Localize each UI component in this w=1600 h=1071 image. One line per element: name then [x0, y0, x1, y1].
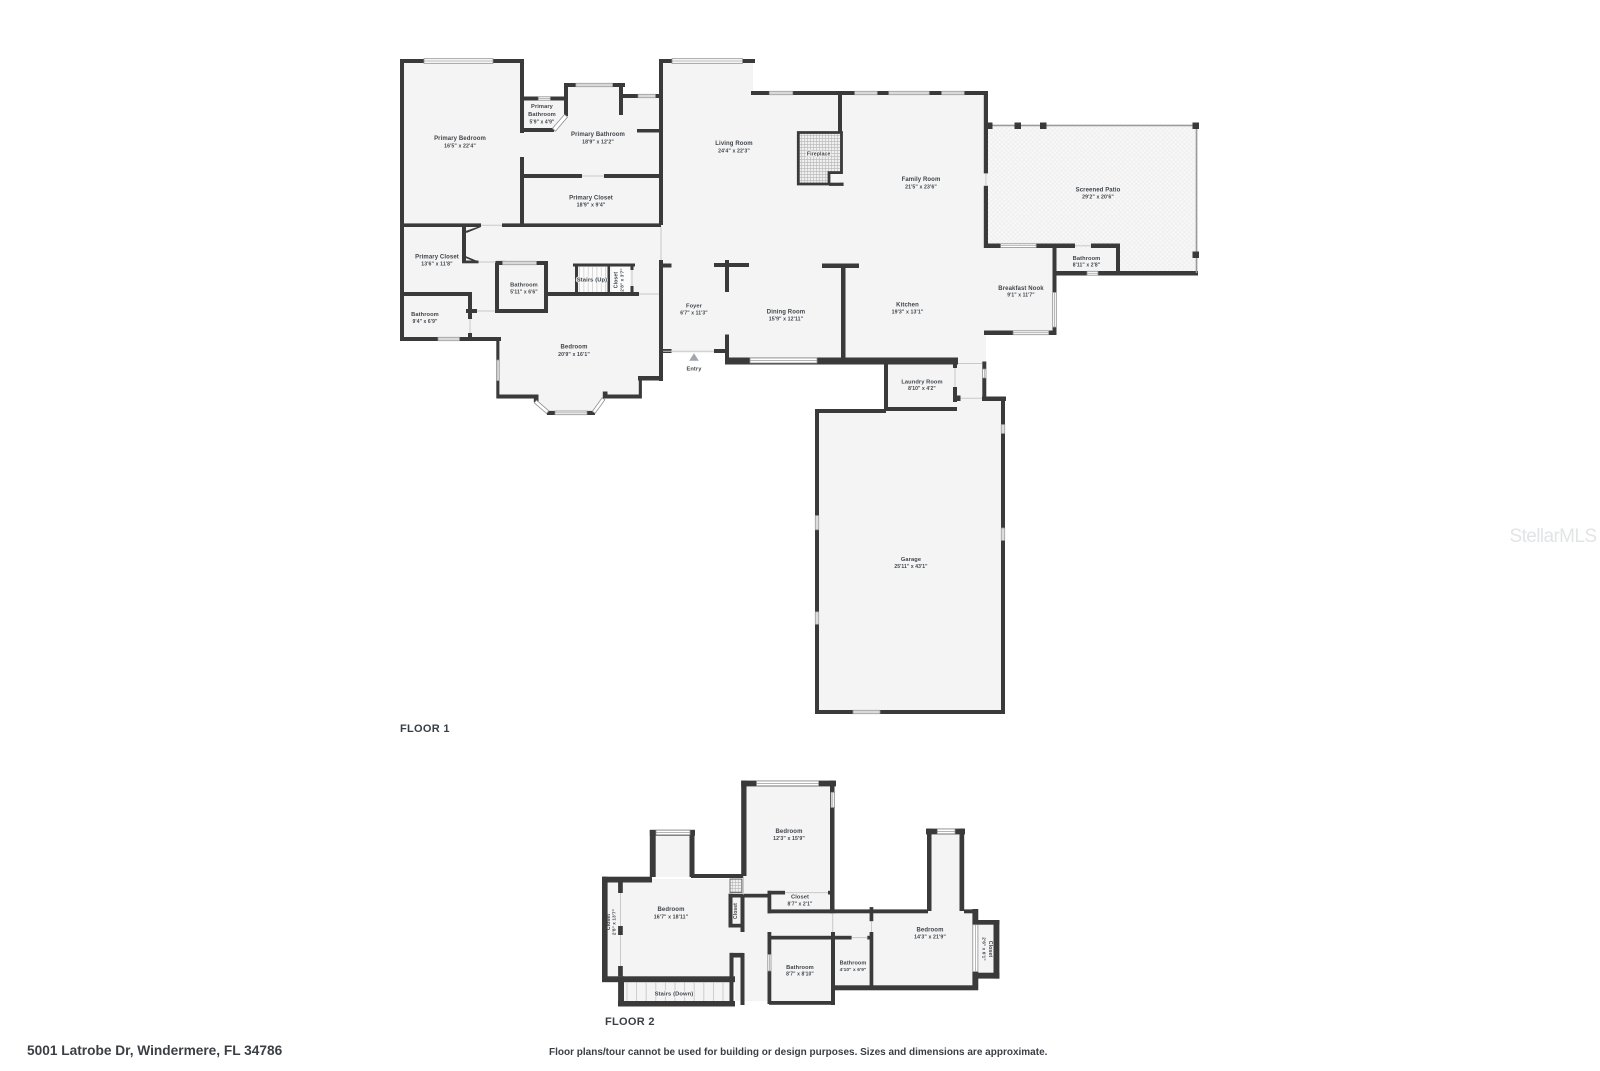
svg-text:Stairs (Up): Stairs (Up)	[577, 278, 607, 284]
svg-text:5'11" x 6'6": 5'11" x 6'6"	[510, 290, 538, 296]
svg-text:Closet: Closet	[791, 895, 809, 901]
svg-text:Breakfast Nook: Breakfast Nook	[998, 286, 1044, 292]
svg-text:4'10" x 6'9": 4'10" x 6'9"	[840, 967, 867, 973]
svg-text:Bedroom: Bedroom	[916, 928, 943, 934]
svg-text:24'4" x 22'3": 24'4" x 22'3"	[718, 149, 750, 155]
svg-text:16'5" x 22'4": 16'5" x 22'4"	[444, 144, 476, 150]
svg-text:12'3" x 15'9": 12'3" x 15'9"	[773, 836, 805, 842]
svg-text:9'4" x 6'9": 9'4" x 6'9"	[413, 319, 438, 325]
svg-text:9'1" x 11'7": 9'1" x 11'7"	[1007, 293, 1035, 299]
svg-text:8'11" x 2'8": 8'11" x 2'8"	[1073, 263, 1101, 269]
svg-text:5001 Latrobe Dr, Windermere, F: 5001 Latrobe Dr, Windermere, FL 34786	[27, 1043, 283, 1058]
svg-text:25'11" x 43'1": 25'11" x 43'1"	[894, 564, 928, 570]
svg-text:Bathroom: Bathroom	[786, 965, 814, 971]
svg-text:Bathroom: Bathroom	[528, 112, 556, 118]
svg-text:16'7" x 18'11": 16'7" x 18'11"	[654, 915, 689, 921]
svg-text:Primary Closet: Primary Closet	[415, 255, 459, 261]
svg-text:13'6" x 11'8": 13'6" x 11'8"	[421, 262, 453, 268]
svg-text:Primary Bedroom: Primary Bedroom	[434, 136, 486, 142]
svg-text:Primary Closet: Primary Closet	[569, 196, 613, 202]
svg-text:14'3" x 21'9": 14'3" x 21'9"	[914, 935, 946, 941]
svg-text:Bedroom: Bedroom	[560, 345, 587, 351]
svg-text:Bedroom: Bedroom	[775, 829, 802, 835]
svg-text:Entry: Entry	[686, 367, 702, 373]
svg-text:18'9" x 9'4": 18'9" x 9'4"	[577, 203, 606, 209]
svg-text:8'7" x 2'1": 8'7" x 2'1"	[788, 902, 813, 908]
svg-text:8'10" x 4'2": 8'10" x 4'2"	[908, 386, 936, 392]
svg-text:Primary Bathroom: Primary Bathroom	[571, 132, 625, 138]
svg-text:Family Room: Family Room	[902, 177, 941, 183]
svg-text:Bedroom: Bedroom	[657, 907, 684, 913]
svg-text:15'9" x 12'11": 15'9" x 12'11"	[769, 317, 804, 323]
svg-text:Screened Patio: Screened Patio	[1076, 188, 1121, 194]
svg-text:Foyer: Foyer	[686, 304, 703, 310]
svg-text:Garage: Garage	[901, 557, 921, 563]
svg-text:18'9" x 12'2": 18'9" x 12'2"	[582, 140, 614, 146]
svg-text:Closet: Closet	[733, 903, 739, 919]
svg-text:Bathroom: Bathroom	[1073, 256, 1101, 262]
svg-text:Primary: Primary	[531, 104, 554, 110]
svg-text:6'7" x 11'3": 6'7" x 11'3"	[680, 311, 708, 317]
svg-text:2'8" x 3'7": 2'8" x 3'7"	[620, 268, 625, 291]
svg-text:Dining Room: Dining Room	[767, 310, 805, 316]
svg-text:Closet: Closet	[987, 941, 993, 958]
svg-text:2'6" x 6'1": 2'6" x 6'1"	[982, 937, 987, 960]
svg-text:5'9" x 4'9": 5'9" x 4'9"	[530, 120, 555, 126]
svg-text:Laundry Room: Laundry Room	[901, 380, 942, 386]
svg-text:StellarMLS: StellarMLS	[1510, 526, 1597, 547]
svg-text:19'3" x 13'1": 19'3" x 13'1"	[892, 310, 924, 316]
svg-text:8'7" x 8'10": 8'7" x 8'10"	[786, 972, 814, 978]
svg-text:Bathroom: Bathroom	[510, 283, 538, 289]
svg-text:2'8" x 13'7": 2'8" x 13'7"	[612, 909, 617, 935]
svg-text:FLOOR 1: FLOOR 1	[400, 723, 450, 735]
svg-text:29'2" x 20'6": 29'2" x 20'6"	[1082, 195, 1114, 201]
svg-text:Bathroom: Bathroom	[411, 312, 439, 318]
svg-text:FLOOR 2: FLOOR 2	[605, 1016, 655, 1028]
svg-text:Floor plans/tour cannot be use: Floor plans/tour cannot be used for buil…	[549, 1047, 1048, 1058]
svg-text:Fireplace: Fireplace	[807, 152, 831, 158]
svg-text:20'9" x 16'1": 20'9" x 16'1"	[558, 352, 590, 358]
svg-text:Stairs (Down): Stairs (Down)	[655, 992, 694, 998]
svg-text:Kitchen: Kitchen	[896, 303, 919, 309]
svg-text:21'5" x 23'6": 21'5" x 23'6"	[905, 185, 937, 191]
svg-text:Living Room: Living Room	[715, 141, 752, 147]
svg-text:Bathroom: Bathroom	[840, 961, 867, 967]
